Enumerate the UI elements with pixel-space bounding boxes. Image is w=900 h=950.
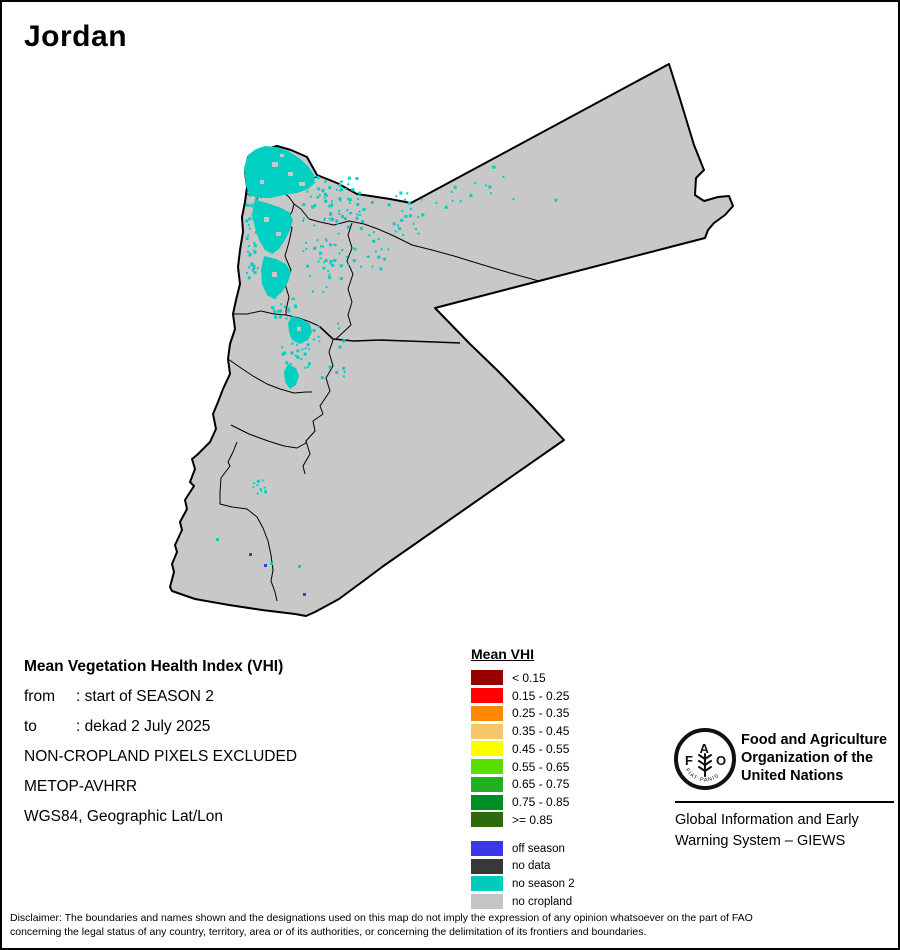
fao-letter-f: F: [685, 753, 693, 768]
wheat-ear-icon: [699, 754, 711, 776]
legend-row: 0.65 - 0.75: [471, 776, 575, 794]
legend-label: 0.15 - 0.25: [512, 689, 569, 703]
legend-row: no cropland: [471, 893, 575, 911]
disclaimer-line2: concerning the legal status of any count…: [10, 925, 753, 939]
legend-label: no data: [512, 860, 550, 872]
legend-swatch: [471, 759, 503, 774]
info-noncropland-line: NON-CROPLAND PIXELS EXCLUDED: [24, 742, 297, 772]
legend-swatch: [471, 812, 503, 827]
legend-label: 0.45 - 0.55: [512, 742, 569, 756]
disclaimer: Disclaimer: The boundaries and names sho…: [10, 911, 753, 939]
fao-divider: [675, 801, 894, 803]
legend-row: >= 0.85: [471, 811, 575, 829]
info-to-line: to: dekad 2 July 2025: [24, 712, 297, 742]
from-label: from: [24, 682, 76, 712]
fao-logo-icon: F A O FIAT·PANIS: [672, 726, 738, 792]
legend-row: 0.55 - 0.65: [471, 758, 575, 776]
legend-swatch: [471, 777, 503, 792]
legend-label: 0.25 - 0.35: [512, 706, 569, 720]
to-value: : dekad 2 July 2025: [76, 718, 210, 735]
legend-swatch: [471, 688, 503, 703]
fao-letter-o: O: [716, 753, 726, 768]
legend-label: 0.75 - 0.85: [512, 795, 569, 809]
map-page: Jordan: [0, 0, 900, 950]
legend-row: 0.45 - 0.55: [471, 740, 575, 758]
legend-label: 0.55 - 0.65: [512, 760, 569, 774]
giews-name: Global Information and Early Warning Sys…: [675, 810, 859, 852]
legend-swatch: [471, 706, 503, 721]
legend-swatch: [471, 670, 503, 685]
legend-label: < 0.15: [512, 671, 546, 685]
legend-row: 0.35 - 0.45: [471, 722, 575, 740]
map-info-block: Mean Vegetation Health Index (VHI) from:…: [24, 652, 297, 832]
info-projection-line: WGS84, Geographic Lat/Lon: [24, 802, 297, 832]
legend-row: 0.15 - 0.25: [471, 687, 575, 705]
legend-swatch: [471, 859, 503, 874]
legend-swatch: [471, 876, 503, 891]
disclaimer-line1: Disclaimer: The boundaries and names sho…: [10, 911, 753, 925]
country-outline: [170, 64, 733, 616]
legend-swatch: [471, 841, 503, 856]
legend-row: off season: [471, 840, 575, 858]
legend: Mean VHI < 0.150.15 - 0.250.25 - 0.350.3…: [471, 646, 575, 911]
fao-org-name: Food and Agriculture Organization of the…: [741, 731, 887, 785]
legend-swatch: [471, 741, 503, 756]
legend-label: no season 2: [512, 878, 575, 890]
from-value: : start of SEASON 2: [76, 688, 214, 705]
legend-label: 0.65 - 0.75: [512, 777, 569, 791]
info-heading: Mean Vegetation Health Index (VHI): [24, 652, 297, 682]
to-label: to: [24, 712, 76, 742]
legend-swatch: [471, 724, 503, 739]
legend-label: off season: [512, 843, 565, 855]
info-from-line: from: start of SEASON 2: [24, 682, 297, 712]
legend-label: no cropland: [512, 896, 572, 908]
legend-row: 0.75 - 0.85: [471, 793, 575, 811]
legend-title: Mean VHI: [471, 646, 575, 662]
legend-row: no season 2: [471, 875, 575, 893]
legend-swatch: [471, 894, 503, 909]
legend-other-classes: off seasonno datano season 2no cropland: [471, 840, 575, 911]
legend-swatch: [471, 795, 503, 810]
legend-label: 0.35 - 0.45: [512, 724, 569, 738]
legend-row: 0.25 - 0.35: [471, 705, 575, 723]
info-sensor-line: METOP-AVHRR: [24, 772, 297, 802]
legend-vhi-classes: < 0.150.15 - 0.250.25 - 0.350.35 - 0.450…: [471, 669, 575, 829]
legend-label: >= 0.85: [512, 813, 553, 827]
legend-row: < 0.15: [471, 669, 575, 687]
legend-row: no data: [471, 857, 575, 875]
